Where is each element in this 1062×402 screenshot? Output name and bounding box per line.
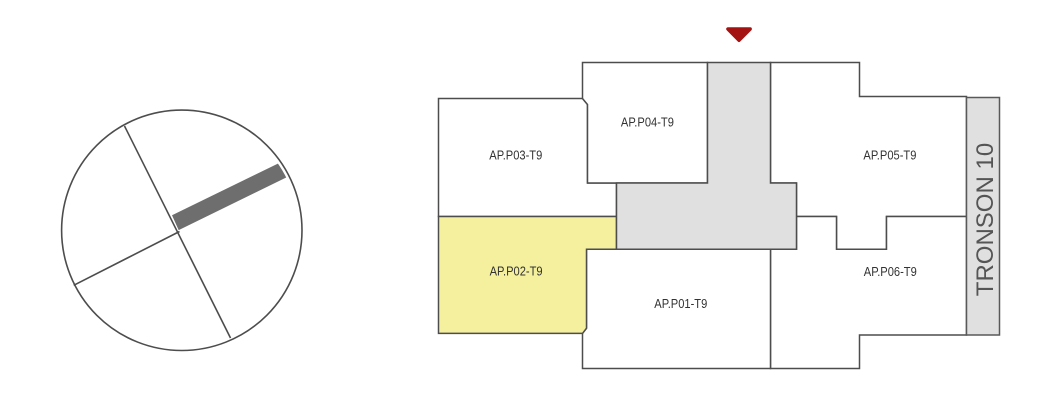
svg-text:AP.P03-T9: AP.P03-T9	[489, 147, 542, 162]
svg-text:AP.P01-T9: AP.P01-T9	[654, 296, 707, 311]
svg-text:AP.P05-T9: AP.P05-T9	[863, 147, 916, 162]
svg-text:TRONSON 10: TRONSON 10	[972, 143, 999, 296]
svg-text:AP.P02-T9: AP.P02-T9	[490, 264, 543, 279]
svg-text:AP.P06-T9: AP.P06-T9	[864, 264, 917, 279]
svg-text:AP.P04-T9: AP.P04-T9	[621, 115, 674, 130]
